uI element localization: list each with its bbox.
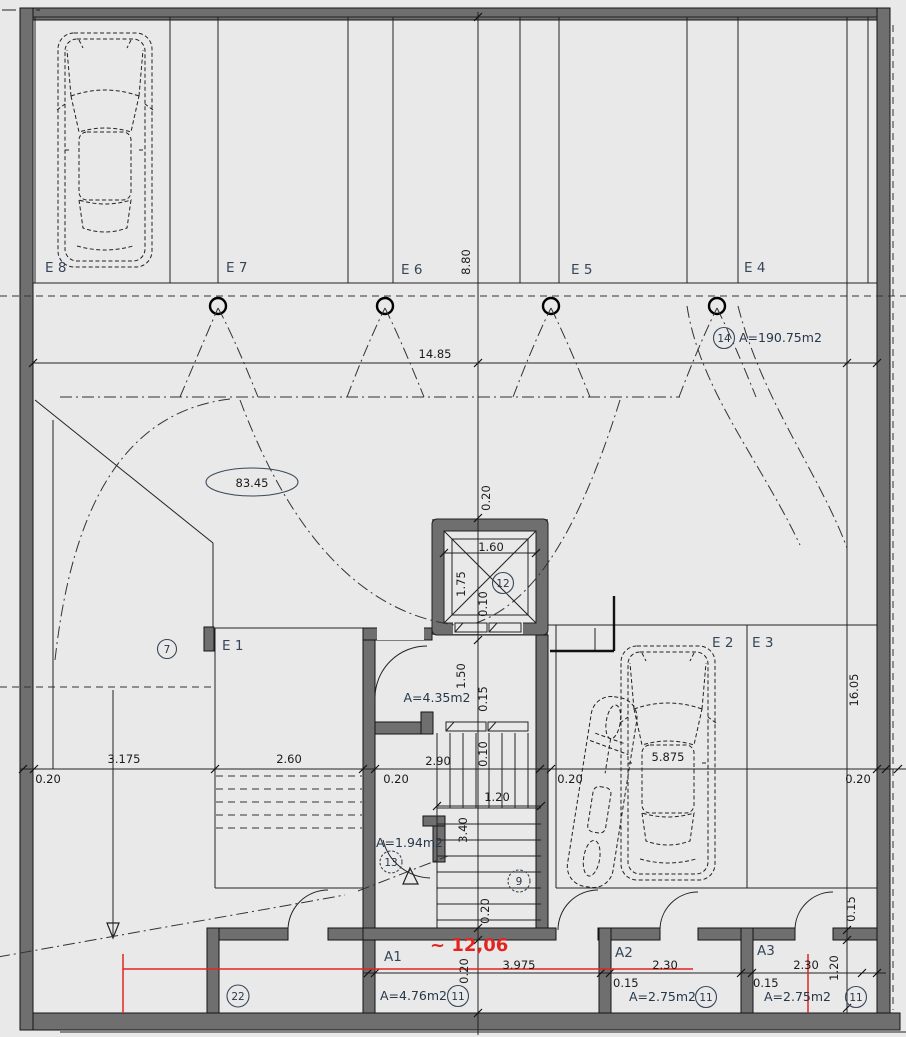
ref-garage: 14	[717, 333, 731, 345]
dim-storage-wall-bottom: 0.20	[457, 958, 471, 984]
ref-a1: 11	[451, 991, 464, 1003]
motorcycle-icon	[564, 694, 639, 891]
dimension-texts: 8.80 14.85 83.45 0.20 1.60 1.75 0.10 1.5…	[35, 249, 871, 990]
ref-stair: 9	[516, 876, 523, 888]
label-e3: E 3	[752, 635, 773, 651]
dim-a3-wall: 0.15	[753, 976, 779, 990]
dim-shaft-top-wall: 0.20	[479, 485, 493, 511]
label-a2: A2	[615, 945, 633, 961]
dim-a2-width: 2.30	[652, 958, 678, 972]
area-a1: A=4.76m2	[380, 988, 447, 1003]
dim-core-wall-left: 0.20	[383, 772, 409, 786]
left-zone-lines	[0, 400, 363, 957]
label-e8: E 8	[45, 260, 66, 276]
dim-elev-depth: 1.75	[454, 571, 468, 597]
area-texts: A=190.75m2 A=4.35m2 A=1.94m2 A=4.76m2 A=…	[376, 330, 831, 1004]
floor-plan-svg: E 8 E 7 E 6 E 5 E 4 E 1 E 2 E 3 A1 A2 A3…	[0, 0, 906, 1037]
area-a2: A=2.75m2	[629, 989, 696, 1004]
reference-bubbles	[158, 328, 867, 1008]
dim-a2-wall: 0.15	[613, 976, 639, 990]
label-e1: E 1	[222, 638, 243, 654]
dim-stair-wall: 0.10	[476, 741, 490, 767]
dim-a3-width: 2.30	[793, 958, 819, 972]
label-e5: E 5	[571, 262, 592, 278]
dim-top-depth: 8.80	[459, 249, 473, 275]
dim-elev-wall: 0.10	[476, 591, 490, 617]
dim-lobby-depth: 1.50	[454, 663, 468, 689]
parking-bay-lines	[0, 17, 906, 296]
parking-labels: E 8 E 7 E 6 E 5 E 4 E 1 E 2 E 3 A1 A2 A3	[45, 260, 775, 965]
dim-top-width: 14.85	[419, 347, 452, 361]
label-e2: E 2	[712, 635, 733, 651]
dim-stair-width: 1.20	[484, 790, 510, 804]
ref-left-column: 7	[164, 644, 171, 656]
reference-numbers: 14 12 7 13 9 22 11 11 11	[164, 333, 863, 1004]
area-garage: A=190.75m2	[739, 330, 822, 345]
label-e7: E 7	[226, 260, 247, 276]
ref-elevator: 12	[496, 578, 509, 590]
dim-right-depth: 16.05	[847, 674, 861, 707]
ref-a2: 11	[699, 992, 712, 1004]
level-annotation: ~ 12,06	[430, 935, 508, 956]
label-e4: E 4	[744, 260, 765, 276]
column-circles	[210, 298, 725, 314]
dim-right-wall: 0.20	[845, 772, 871, 786]
label-e6: E 6	[401, 262, 422, 278]
dim-bay-e2: 5.875	[652, 750, 685, 764]
dim-core-wall-right: 0.20	[557, 772, 583, 786]
dim-lobby-width: 2.90	[425, 754, 451, 768]
dim-lobby-wall: 0.15	[476, 686, 490, 712]
dim-left-wall: 0.20	[35, 772, 61, 786]
label-a3: A3	[757, 943, 775, 959]
dim-stair-length: 3.40	[456, 817, 470, 843]
ref-corridor: 13	[384, 857, 397, 869]
ref-room22: 22	[231, 991, 244, 1003]
dim-bay-e1: 2.60	[276, 752, 302, 766]
ref-a3: 11	[849, 992, 862, 1004]
label-a1: A1	[384, 949, 402, 965]
dim-storage-wall-top: 0.20	[478, 898, 492, 924]
dim-drive-area: 83.45	[236, 476, 269, 490]
dim-a1-width: 3.975	[503, 958, 536, 972]
dim-storage-depth: 1.20	[827, 955, 841, 981]
car-e8	[57, 33, 153, 267]
area-lobby: A=4.35m2	[404, 690, 471, 705]
area-a3: A=2.75m2	[764, 989, 831, 1004]
dim-bay-left: 3.175	[108, 752, 141, 766]
dim-right-wall-thin: 0.15	[844, 896, 858, 922]
area-corridor: A=1.94m2	[376, 835, 443, 850]
dim-elev-width: 1.60	[478, 540, 504, 554]
floor-plan-sheet: E 8 E 7 E 6 E 5 E 4 E 1 E 2 E 3 A1 A2 A3…	[0, 0, 906, 1037]
